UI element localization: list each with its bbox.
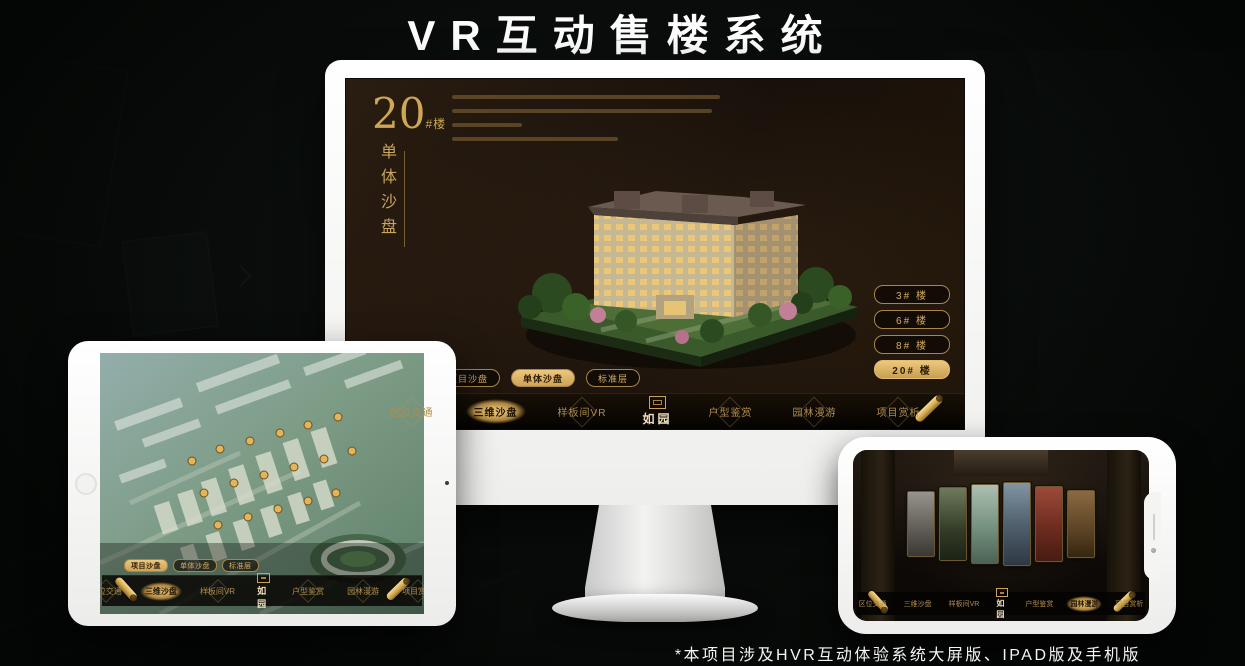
description-line xyxy=(452,95,720,99)
subtitle-rule xyxy=(404,151,405,247)
interior-scene-beam xyxy=(954,450,1049,476)
description-line xyxy=(452,137,618,141)
phone-screen: 区位交通 三维沙盘 样板间VR 如园 户型鉴赏 园林漫游 项目赏析 xyxy=(853,450,1149,621)
description-text-lines xyxy=(452,95,720,151)
description-line xyxy=(452,109,712,113)
description-line xyxy=(452,123,522,127)
phone-camera-icon xyxy=(1151,548,1156,553)
building-button-20[interactable]: 20# 楼 xyxy=(874,360,950,379)
phone-speaker-icon xyxy=(1153,514,1155,540)
sandbox-subtabs: 项目沙盘 单体沙盘 标准层 xyxy=(436,369,640,387)
gallery-panel-4[interactable] xyxy=(1003,482,1031,566)
building-button-6[interactable]: 6# 楼 xyxy=(874,310,950,329)
subtab-single-sandbox[interactable]: 单体沙盘 xyxy=(511,369,575,387)
building-selector: 3# 楼 6# 楼 8# 楼 20# 楼 xyxy=(874,285,950,379)
gallery-panel-3[interactable] xyxy=(971,484,999,564)
phone-nav-garden-roam[interactable]: 园林漫游 xyxy=(1066,596,1102,612)
phone-nav-unit-gallery[interactable]: 户型鉴赏 xyxy=(1021,596,1057,612)
ruyuan-logo-icon xyxy=(649,396,666,409)
tablet-navbar: 区位交通 三维沙盘 样板间VR 如园 户型鉴赏 园林漫游 项目赏析 xyxy=(102,575,422,606)
building-model-image xyxy=(506,145,866,377)
gallery-panel-6[interactable] xyxy=(1067,490,1095,558)
nav-item-3d-sandbox[interactable]: 三维沙盘 xyxy=(466,399,526,424)
phone-notch xyxy=(1144,492,1161,580)
tablet-subtab-project-sandbox[interactable]: 项目沙盘 xyxy=(124,559,168,572)
nav-item-unit-gallery[interactable]: 户型鉴赏 xyxy=(700,399,760,424)
gallery-panel-2[interactable] xyxy=(939,487,967,561)
block-number: 20 xyxy=(372,89,425,138)
nav-item-showroom-vr[interactable]: 样板间VR xyxy=(550,399,615,424)
phone-brand-logo: 如园 xyxy=(996,588,1008,620)
subtab-standard-floor[interactable]: 标准层 xyxy=(586,369,640,387)
gallery-panels xyxy=(907,482,1095,566)
tablet-device: 项目沙盘 单体沙盘 标准层 区位交通 三维沙盘 样板间VR 如园 户型鉴赏 园林… xyxy=(68,341,456,626)
tablet-subtab-standard-floor[interactable]: 标准层 xyxy=(222,559,259,572)
tablet-brand-logo: 如园 xyxy=(257,573,270,610)
tablet-nav-3d-sandbox[interactable]: 三维沙盘 xyxy=(140,582,182,601)
footnote-text: *本项目涉及HVR互动体验系统大屏版、IPAD版及手机版 xyxy=(675,641,1141,665)
nav-item-project-review[interactable]: 项目赏析 xyxy=(868,399,928,424)
tablet-home-button[interactable] xyxy=(75,473,97,495)
tablet-nav-location-traffic[interactable]: 区位交通 xyxy=(100,582,127,601)
block-unit: #楼 xyxy=(425,117,446,131)
monitor-base xyxy=(552,594,758,622)
gallery-panel-1[interactable] xyxy=(907,491,935,557)
building-button-3[interactable]: 3# 楼 xyxy=(874,285,950,304)
tablet-nav-unit-gallery[interactable]: 户型鉴赏 xyxy=(287,582,329,601)
brand-logo: 如园 xyxy=(642,396,672,427)
page-title: VR互动售楼系统 xyxy=(0,2,1245,63)
building-button-8[interactable]: 8# 楼 xyxy=(874,335,950,354)
ruyuan-logo-icon xyxy=(257,573,270,583)
phone-nav-location-traffic[interactable]: 区位交通 xyxy=(855,596,891,612)
phone-nav-project-review[interactable]: 项目赏析 xyxy=(1111,596,1147,612)
phone-nav-showroom-vr[interactable]: 样板间VR xyxy=(945,596,984,612)
tablet-nav-garden-roam[interactable]: 园林漫游 xyxy=(342,582,384,601)
monitor-navbar: 区位交通 三维沙盘 样板间VR 如园 户型鉴赏 园林漫游 项目赏析 xyxy=(346,393,964,429)
phone-device: 区位交通 三维沙盘 样板间VR 如园 户型鉴赏 园林漫游 项目赏析 xyxy=(838,437,1176,634)
tablet-camera-icon xyxy=(445,481,449,485)
brand-logo-text: 如园 xyxy=(642,410,672,427)
tablet-nav-project-review[interactable]: 项目赏析 xyxy=(397,582,424,601)
gallery-panel-5[interactable] xyxy=(1035,486,1063,562)
ruyuan-logo-icon xyxy=(996,588,1008,597)
phone-navbar: 区位交通 三维沙盘 样板间VR 如园 户型鉴赏 园林漫游 项目赏析 xyxy=(857,592,1145,615)
tablet-screen: 项目沙盘 单体沙盘 标准层 区位交通 三维沙盘 样板间VR 如园 户型鉴赏 园林… xyxy=(100,353,424,614)
tablet-subtab-single-sandbox[interactable]: 单体沙盘 xyxy=(173,559,217,572)
phone-nav-3d-sandbox[interactable]: 三维沙盘 xyxy=(900,596,936,612)
tablet-nav-showroom-vr[interactable]: 样板间VR xyxy=(195,582,240,601)
block-subtitle: 单体沙盘 xyxy=(378,143,394,255)
nav-item-garden-roam[interactable]: 园林漫游 xyxy=(784,399,844,424)
nav-item-location-traffic[interactable]: 区位交通 xyxy=(382,399,442,424)
monitor-stand xyxy=(585,505,725,599)
block-title: 20#楼 单体沙盘 xyxy=(372,93,446,255)
tablet-subtabs: 项目沙盘 单体沙盘 标准层 xyxy=(124,559,259,572)
